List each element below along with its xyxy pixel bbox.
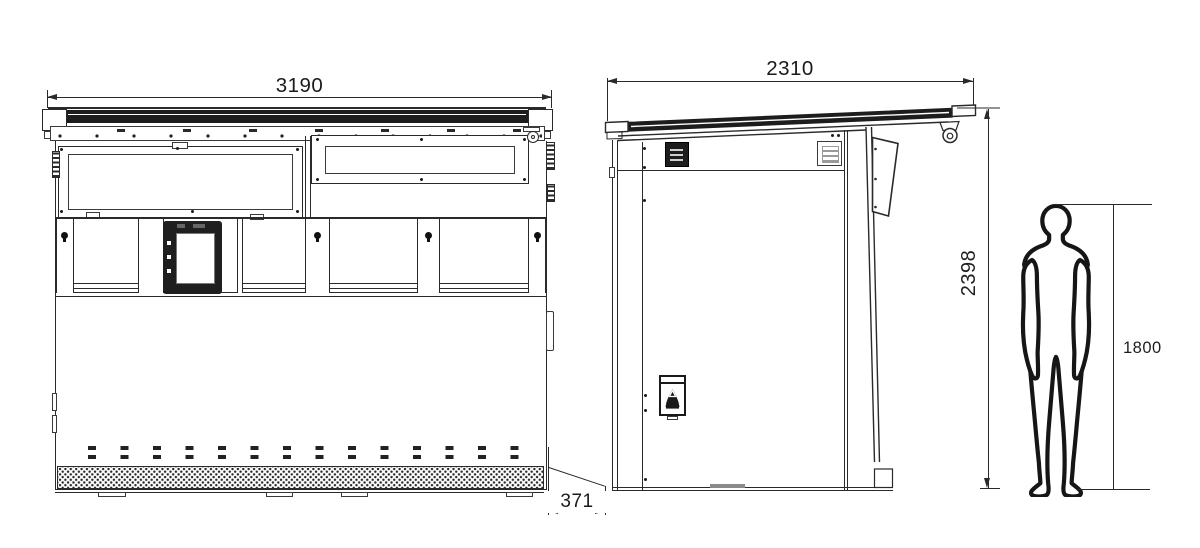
- reference-line-top: [1053, 204, 1152, 205]
- reference-line-vertical: [1113, 204, 1114, 490]
- human-figure: [1012, 202, 1100, 497]
- technical-drawing: 3190: [0, 0, 1200, 548]
- reference-line-ground: [1078, 489, 1150, 490]
- dim-person-height-label: 1800: [1123, 339, 1162, 358]
- human-scale-reference: 1800: [0, 0, 1200, 548]
- human-arm-right: [1073, 260, 1089, 378]
- human-arm-left: [1023, 260, 1039, 378]
